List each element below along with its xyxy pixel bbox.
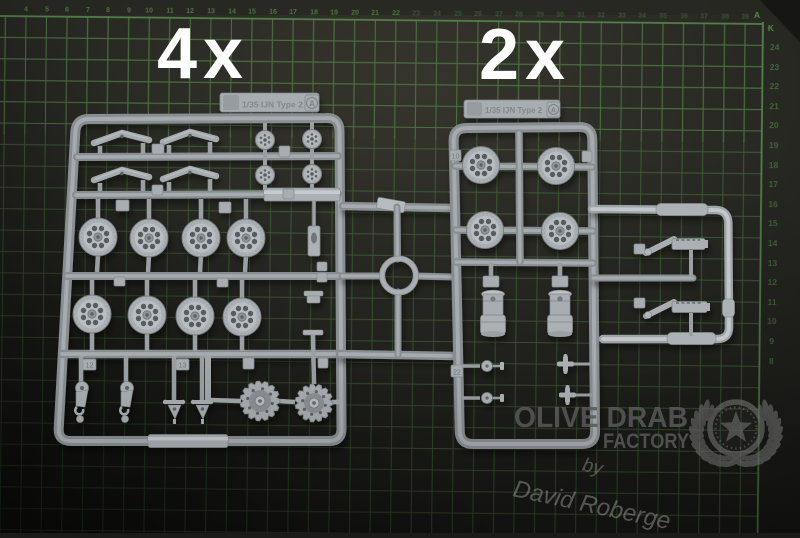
svg-text:10: 10 [452,154,460,161]
svg-text:2x: 2x [479,15,571,95]
svg-text:1/35 IJN Type 2: 1/35 IJN Type 2 [485,106,543,115]
svg-text:FACTORY: FACTORY [603,430,689,453]
svg-text:A: A [309,100,315,109]
svg-text:4x: 4x [157,14,249,94]
svg-text:A: A [551,106,557,115]
svg-text:1/35 IJN Type 2: 1/35 IJN Type 2 [242,100,303,110]
